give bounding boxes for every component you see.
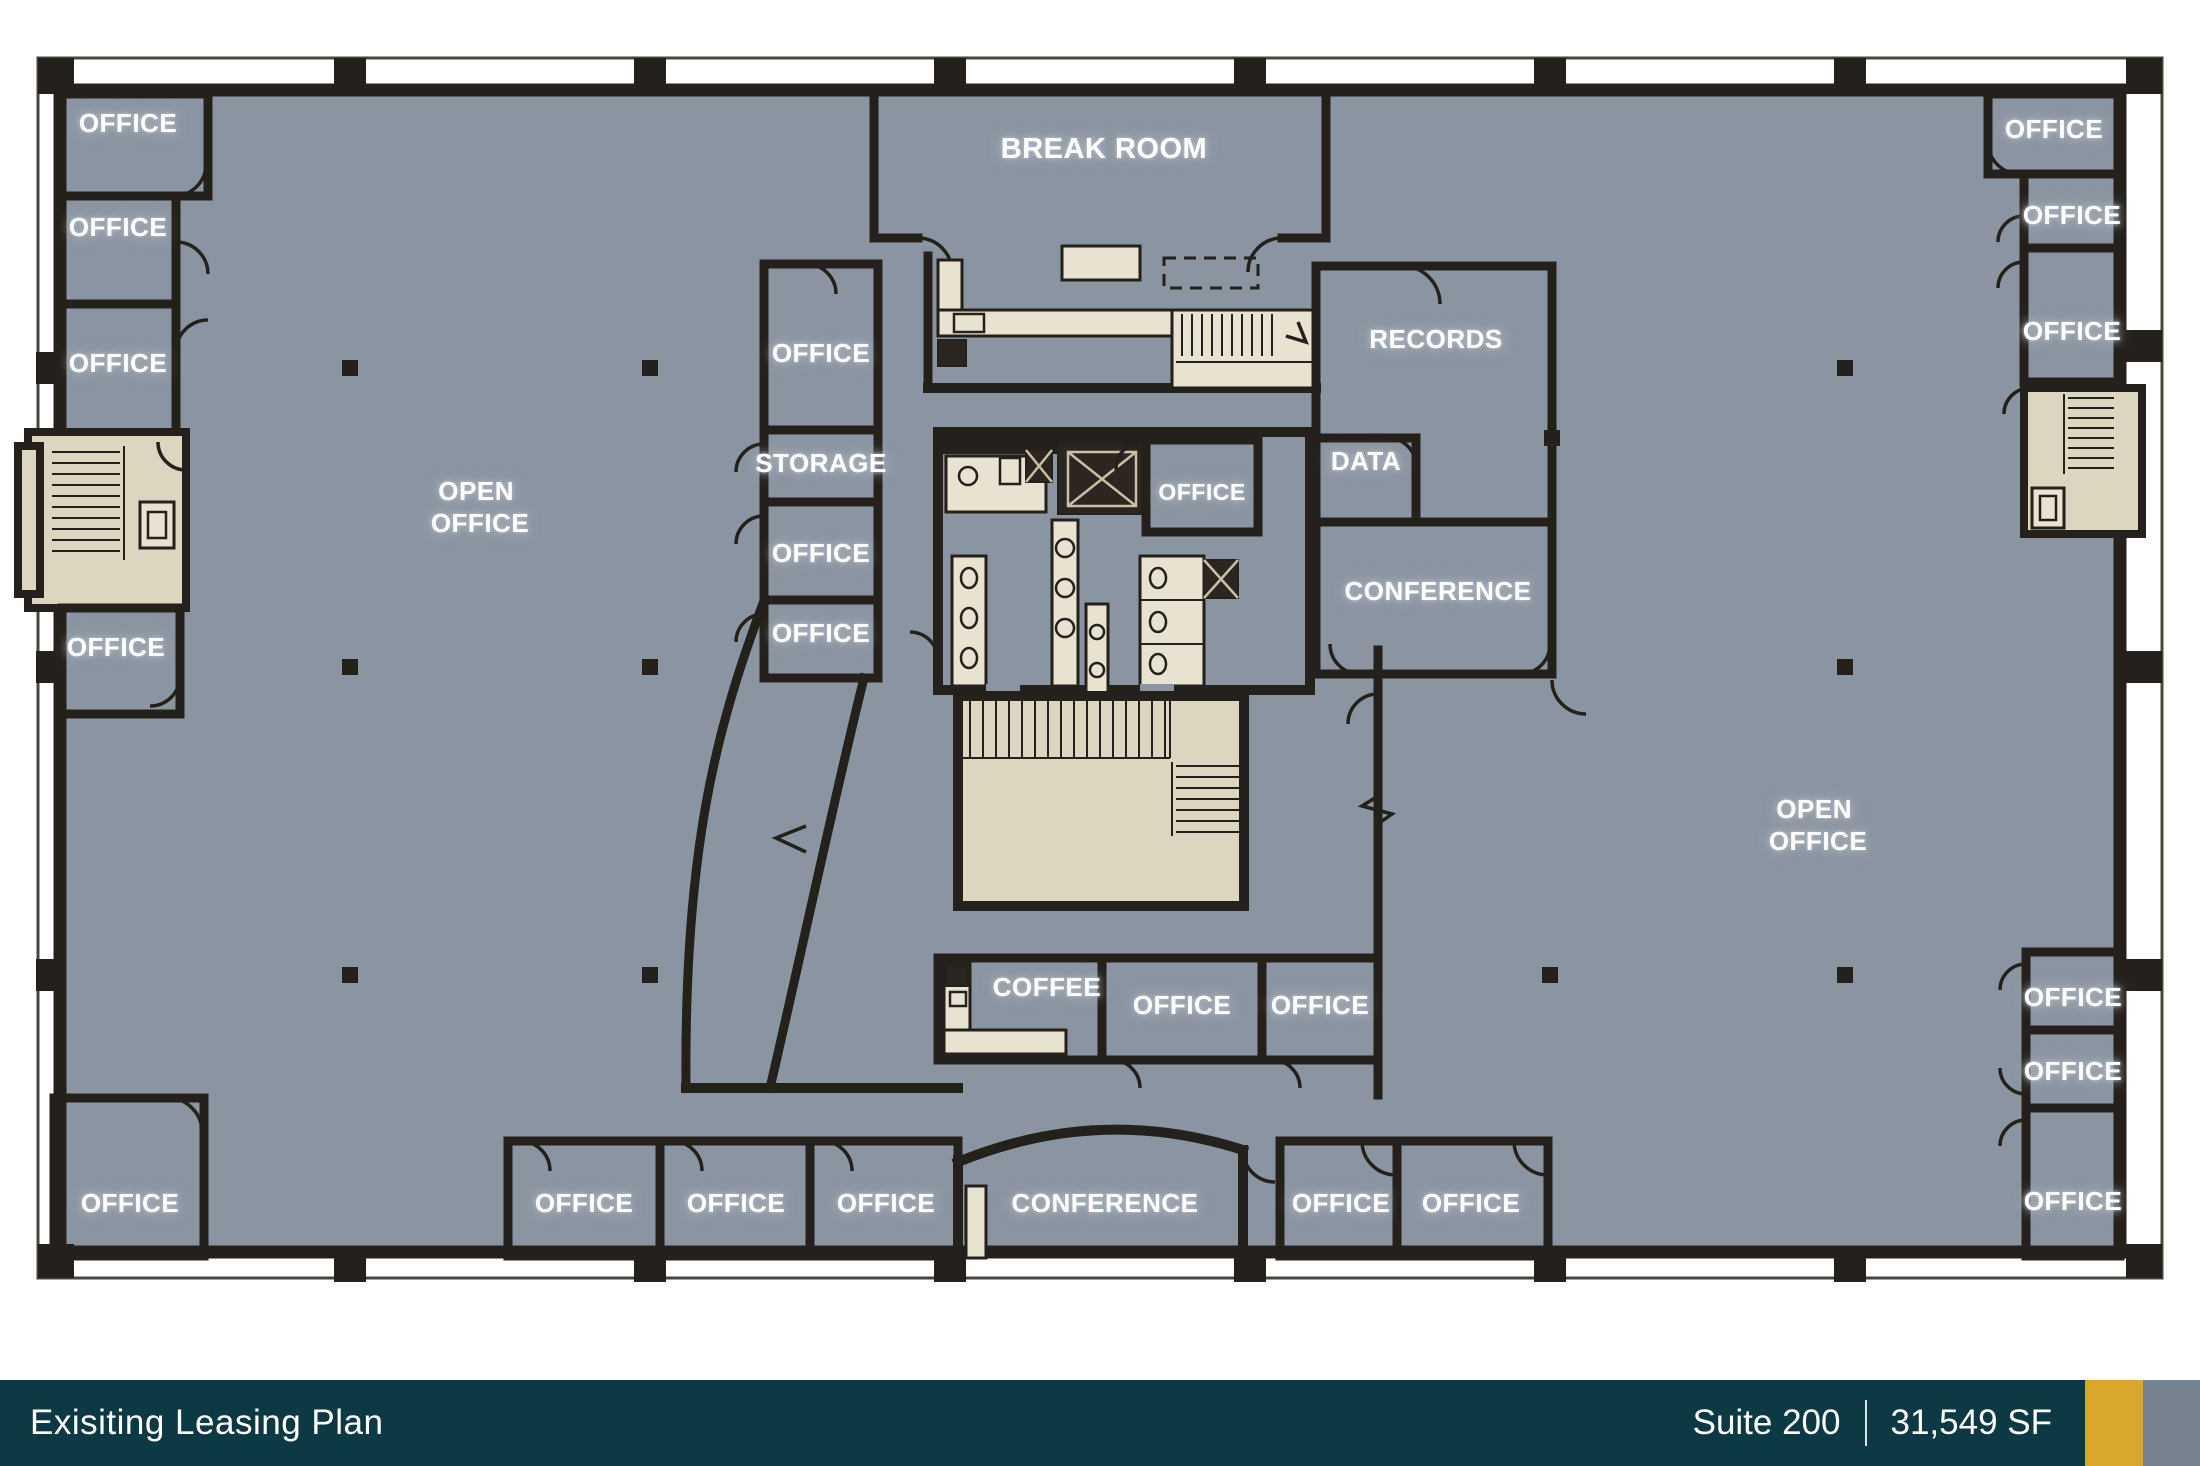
room-label-conference: CONFERENCE (1344, 576, 1531, 606)
room-label-break-room: BREAK ROOM (1001, 133, 1207, 165)
suite-info: Suite 200 31,549 SF (1693, 1380, 2052, 1466)
appliance-icon (946, 966, 968, 986)
break-room-table (1062, 246, 1140, 280)
room-label-office: OFFICE (2005, 114, 2103, 144)
sideboard (966, 1186, 986, 1258)
room-label-office: OFFICE (79, 108, 177, 138)
stair-core-right (2004, 388, 2142, 534)
room-label-office: OFFICE (1271, 990, 1369, 1020)
room-label-office: OFFICE (2023, 316, 2121, 346)
room-label-office: OFFICE (772, 338, 870, 368)
open-office-line1: OPEN (1776, 794, 1852, 824)
room-label-conference: CONFERENCE (1011, 1188, 1198, 1218)
room-label-records: RECORDS (1369, 324, 1503, 354)
room-label-office: OFFICE (837, 1188, 935, 1218)
room-label-office: OFFICE (535, 1188, 633, 1218)
room-label-coffee: COFFEE (993, 972, 1101, 1002)
appliance-icon (938, 340, 966, 366)
room-label-office: OFFICE (1422, 1188, 1520, 1218)
open-office-line1: OPEN (438, 476, 514, 506)
room-label-office: OFFICE (2024, 982, 2122, 1012)
accent-gold-block (2085, 1380, 2143, 1466)
room-label-office: OFFICE (69, 348, 167, 378)
elevator-icon (2032, 488, 2064, 528)
stair-top-center (1172, 310, 1316, 388)
room-label-office: OFFICE (1133, 990, 1231, 1020)
stair-core-left (18, 432, 186, 608)
room-label-office: OFFICE (772, 618, 870, 648)
floor-plan-svg: OFFICE OFFICE OFFICE OFFICE OFFICE OPEN … (0, 0, 2200, 1380)
room-label-office: OFFICE (2024, 1186, 2122, 1216)
footer-divider (1865, 1400, 1867, 1446)
toilet-stalls (952, 556, 986, 686)
room-label-storage: STORAGE (755, 448, 887, 478)
plan-title: Exisiting Leasing Plan (30, 1380, 383, 1466)
accent-gray-block (2143, 1380, 2200, 1466)
room-label-office: OFFICE (772, 538, 870, 568)
coffee-counter (944, 1030, 1066, 1054)
room-label-office: OFFICE (67, 632, 165, 662)
room-label-office: OFFICE (687, 1188, 785, 1218)
open-office-line2: OFFICE (1769, 826, 1867, 856)
elevator-icon (140, 502, 174, 548)
room-label-office: OFFICE (69, 212, 167, 242)
footer-bar: Exisiting Leasing Plan Suite 200 31,549 … (0, 1380, 2200, 1466)
page: OFFICE OFFICE OFFICE OFFICE OFFICE OPEN … (0, 0, 2200, 1466)
room-label-office: OFFICE (81, 1188, 179, 1218)
room-label-data: DATA (1331, 446, 1401, 476)
grand-stair (958, 696, 1244, 906)
room-label-office: OFFICE (2023, 200, 2121, 230)
open-office-line2: OFFICE (431, 508, 529, 538)
room-label-office: OFFICE (1158, 479, 1245, 505)
area-label: 31,549 SF (1891, 1403, 2053, 1443)
suite-label: Suite 200 (1693, 1403, 1841, 1443)
room-label-office: OFFICE (2024, 1056, 2122, 1086)
room-label-office: OFFICE (1292, 1188, 1390, 1218)
